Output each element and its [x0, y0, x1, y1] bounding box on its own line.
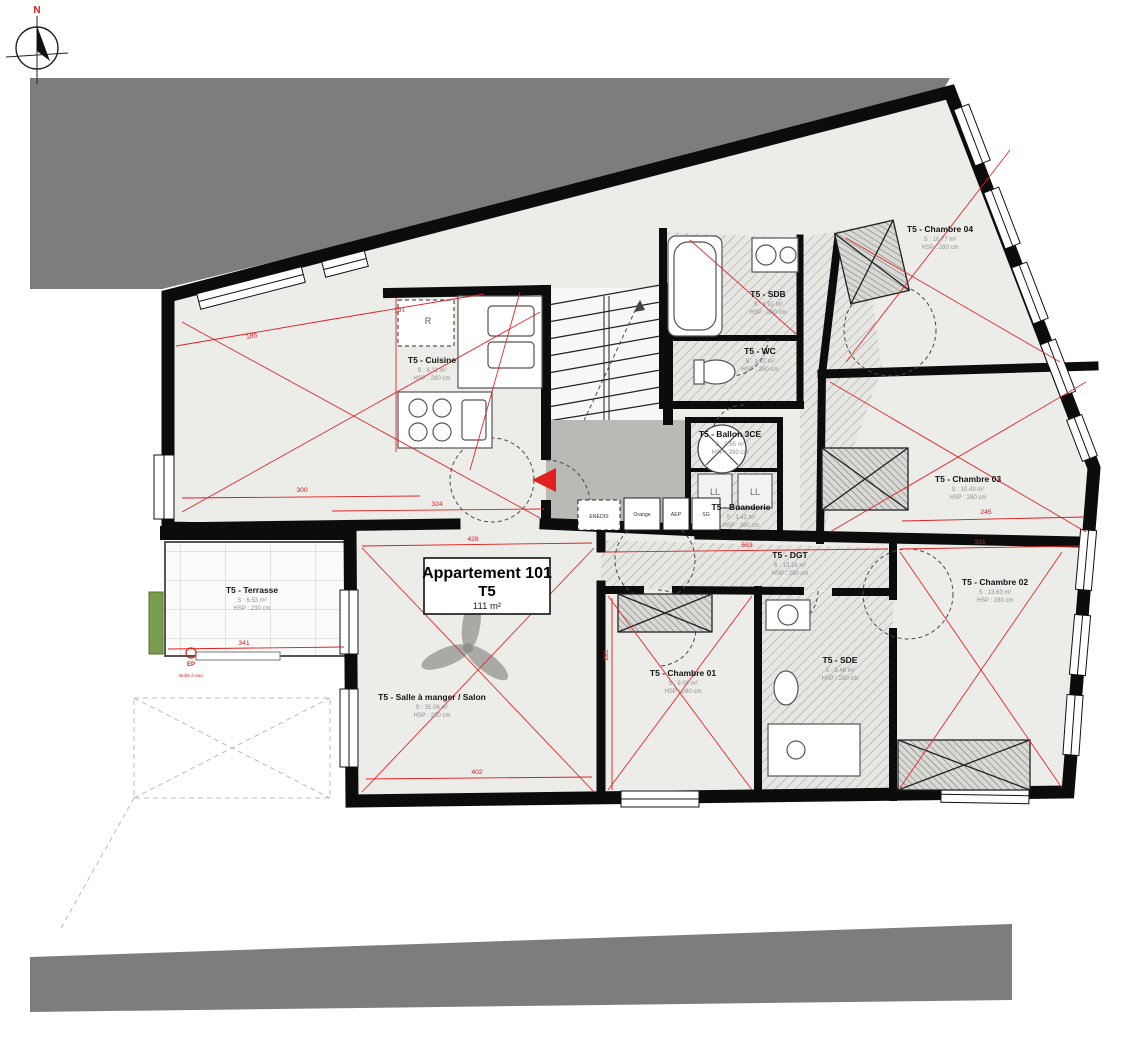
rainwater-note: Boîte à eau: [179, 673, 203, 678]
utility-boxes: ENEDIS Orange AEP SG: [578, 498, 720, 530]
door-terrace: [340, 590, 358, 654]
utility-label-sg: SG: [702, 512, 710, 518]
svg-text:T5 - Ballon 3CE: T5 - Ballon 3CE: [699, 429, 762, 439]
svg-text:HSP : 280 cm: HSP : 280 cm: [977, 598, 1014, 604]
title-type: T5: [478, 583, 496, 600]
svg-text:S : 6.53 m²: S : 6.53 m²: [237, 598, 266, 604]
svg-text:S : 6.11 m²: S : 6.11 m²: [418, 368, 447, 374]
svg-text:S : 9.09 m²: S : 9.09 m²: [668, 681, 697, 687]
svg-text:T5 - Chambre 01: T5 - Chambre 01: [650, 668, 716, 678]
svg-text:S : 13.63 m²: S : 13.63 m²: [979, 590, 1012, 596]
fridge-label: R: [425, 316, 432, 326]
room-label-sde: T5 - SDE S : 5.46 m² HSP : 280 cm: [822, 655, 859, 682]
floor-plan-page: N: [0, 0, 1138, 1040]
hob-burner: [409, 399, 427, 417]
svg-text:HSP : 280 cm: HSP : 280 cm: [414, 713, 451, 719]
svg-text:T5 - Chambre 02: T5 - Chambre 02: [962, 577, 1028, 587]
title-block: Appartement 101 T5 111 m²: [422, 558, 552, 614]
svg-text:S : 1.42 m²: S : 1.42 m²: [726, 515, 755, 521]
dim-324: 324: [431, 501, 443, 508]
terrace-opening: [196, 652, 280, 660]
window-west: [154, 455, 174, 519]
svg-text:HSP : 280 cm: HSP : 280 cm: [750, 310, 787, 316]
dim-300: 300: [296, 487, 308, 494]
utility-label-enedis: ENEDIS: [589, 514, 609, 520]
svg-text:HSP : 280 cm: HSP : 280 cm: [772, 571, 809, 577]
svg-text:S : 0.85 m²: S : 0.85 m²: [715, 442, 744, 448]
svg-text:HSP : 230 cm: HSP : 230 cm: [234, 606, 271, 612]
window-salon-west: [340, 689, 358, 767]
room-label-sdb: T5 - SDB S : 4.91 m² HSP : 280 cm: [750, 289, 787, 316]
wardrobe-chambre02: [898, 740, 1030, 790]
sde-basin: [778, 605, 798, 625]
dim-245: 245: [980, 509, 992, 516]
svg-text:S : 4.91 m²: S : 4.91 m²: [753, 302, 782, 308]
svg-text:S : 35.06 m²: S : 35.06 m²: [416, 705, 449, 711]
svg-text:T5 - SDE: T5 - SDE: [823, 655, 858, 665]
dim-281: 281: [603, 649, 610, 661]
svg-text:T5 - Chambre 04: T5 - Chambre 04: [907, 224, 973, 234]
sdb-basin-1: [756, 245, 776, 265]
wardrobe-chambre03: [822, 448, 908, 510]
svg-text:T5 - DGT: T5 - DGT: [772, 550, 808, 560]
hob-burner: [433, 399, 451, 417]
svg-text:S : 10.77 m²: S : 10.77 m²: [924, 237, 957, 243]
washer-label-1: LL: [710, 487, 720, 497]
svg-text:S : 5.46 m²: S : 5.46 m²: [825, 668, 854, 674]
room-label-dgt: T5 - DGT S : 10.16 m² HSP : 280 cm: [772, 550, 809, 577]
shower-tray: [768, 724, 860, 776]
planter-greenery: [149, 592, 163, 654]
wardrobe-chambre01: [618, 594, 712, 632]
sink-basin-1: [488, 306, 534, 336]
window-south-1: [621, 791, 699, 807]
room-label-wc: T5 - WC S : 1.67 m² HSP : 280 cm: [742, 346, 779, 373]
svg-text:T5 - Cuisine: T5 - Cuisine: [408, 355, 456, 365]
wc-fixtures: [694, 360, 735, 384]
svg-text:HSP : 280 cm: HSP : 280 cm: [414, 376, 451, 382]
utility-label-orange: Orange: [633, 512, 650, 518]
dim-428: 428: [467, 536, 479, 543]
title-area: 111 m²: [473, 601, 501, 612]
bathtub: [668, 236, 722, 336]
svg-text:S : 1.67 m²: S : 1.67 m²: [745, 359, 774, 365]
svg-text:T5 - Buanderie: T5 - Buanderie: [711, 502, 770, 512]
svg-text:T5 - WC: T5 - WC: [744, 346, 776, 356]
hob-burner: [409, 423, 427, 441]
svg-text:HSP : 280 cm: HSP : 280 cm: [723, 523, 760, 529]
title-apartment: Appartement 101: [422, 565, 552, 582]
floor-plan-drawing: N: [0, 0, 1138, 1040]
svg-text:HSP : 280 cm: HSP : 280 cm: [742, 367, 779, 373]
svg-text:S : 10.43 m²: S : 10.43 m²: [952, 487, 985, 493]
projection-dashed-area: [60, 698, 330, 930]
svg-text:HSP : 280 cm: HSP : 280 cm: [665, 689, 702, 695]
island-sink: [462, 400, 486, 440]
sdb-basin-2: [780, 247, 796, 263]
svg-text:T5 - Terrasse: T5 - Terrasse: [226, 585, 279, 595]
hob-burner: [433, 423, 451, 441]
north-label: N: [33, 5, 40, 16]
ep-label: EP: [187, 662, 195, 668]
sde-toilet: [774, 671, 798, 705]
dim-331: 331: [974, 539, 986, 546]
dim-402: 402: [471, 769, 483, 776]
wc-toilet-tank: [694, 360, 704, 384]
svg-text:T5 - Chambre 03: T5 - Chambre 03: [935, 474, 1001, 484]
svg-text:HSP : 280 cm: HSP : 280 cm: [950, 495, 987, 501]
svg-text:T5 - SDB: T5 - SDB: [750, 289, 785, 299]
dim-563: 563: [741, 542, 753, 549]
svg-text:HSP : 280 cm: HSP : 280 cm: [712, 450, 749, 456]
dim-341: 341: [238, 640, 250, 647]
compass-icon: N: [6, 5, 68, 84]
stairwell: [546, 284, 668, 440]
neighbor-building-south: [30, 924, 1012, 1012]
sink-basin-2: [488, 342, 534, 368]
svg-text:HSP : 280 cm: HSP : 280 cm: [922, 245, 959, 251]
svg-text:T5 - Salle à manger / Salon: T5 - Salle à manger / Salon: [378, 692, 486, 702]
washer-label-2: LL: [750, 487, 760, 497]
svg-text:HSP : 280 cm: HSP : 280 cm: [822, 676, 859, 682]
svg-text:S : 10.16 m²: S : 10.16 m²: [774, 563, 807, 569]
utility-label-aep: AEP: [671, 512, 682, 518]
